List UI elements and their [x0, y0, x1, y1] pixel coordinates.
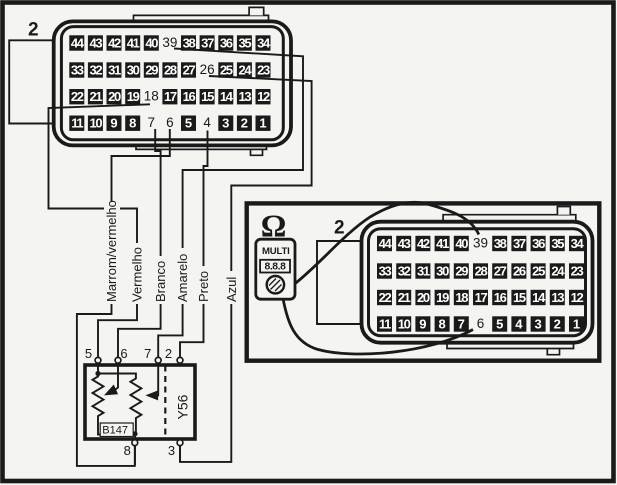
svg-text:43: 43 [89, 35, 102, 50]
svg-text:42: 42 [417, 236, 430, 251]
svg-text:2: 2 [554, 316, 561, 331]
svg-text:18: 18 [455, 290, 468, 305]
svg-text:19: 19 [127, 89, 140, 104]
svg-text:16: 16 [494, 290, 507, 305]
svg-text:2: 2 [165, 346, 172, 361]
svg-text:14: 14 [532, 290, 546, 305]
svg-text:2: 2 [28, 20, 39, 41]
svg-text:MULTI: MULTI [262, 246, 290, 257]
svg-text:21: 21 [398, 290, 411, 305]
svg-text:5: 5 [496, 316, 503, 331]
svg-text:21: 21 [89, 89, 102, 104]
svg-text:5: 5 [185, 116, 192, 131]
svg-text:24: 24 [551, 263, 565, 278]
svg-text:33: 33 [71, 62, 84, 77]
svg-text:29: 29 [455, 263, 468, 278]
svg-text:7: 7 [458, 316, 465, 331]
svg-text:42: 42 [108, 35, 121, 50]
svg-text:44: 44 [379, 236, 393, 251]
svg-text:10: 10 [89, 116, 102, 131]
svg-text:13: 13 [238, 89, 251, 104]
svg-text:8: 8 [129, 116, 136, 131]
svg-text:37: 37 [201, 35, 214, 50]
svg-text:23: 23 [571, 263, 584, 278]
svg-text:18: 18 [144, 89, 159, 104]
svg-text:5: 5 [85, 346, 92, 361]
svg-text:Vermelho: Vermelho [130, 247, 145, 302]
svg-text:40: 40 [145, 35, 158, 50]
svg-text:15: 15 [513, 290, 526, 305]
svg-text:27: 27 [183, 62, 196, 77]
svg-text:23: 23 [257, 62, 270, 77]
svg-text:35: 35 [238, 35, 251, 50]
svg-text:8: 8 [438, 316, 445, 331]
svg-text:4: 4 [203, 115, 211, 130]
svg-text:17: 17 [164, 89, 177, 104]
svg-text:20: 20 [417, 290, 430, 305]
svg-text:27: 27 [494, 263, 507, 278]
svg-text:28: 28 [164, 62, 177, 77]
svg-text:3: 3 [222, 116, 229, 131]
svg-text:12: 12 [571, 290, 584, 305]
svg-text:34: 34 [257, 35, 271, 50]
svg-text:41: 41 [127, 35, 140, 50]
svg-text:2: 2 [334, 218, 345, 239]
svg-text:8.8.8: 8.8.8 [264, 262, 286, 273]
svg-text:8: 8 [124, 443, 131, 458]
svg-text:31: 31 [417, 263, 430, 278]
svg-text:38: 38 [494, 236, 507, 251]
svg-text:9: 9 [110, 116, 117, 131]
svg-text:2: 2 [241, 116, 248, 131]
svg-text:15: 15 [201, 89, 214, 104]
svg-text:37: 37 [513, 236, 526, 251]
svg-text:29: 29 [145, 62, 158, 77]
svg-text:19: 19 [436, 290, 449, 305]
svg-text:6: 6 [477, 316, 485, 331]
svg-text:22: 22 [379, 290, 392, 305]
svg-text:25: 25 [220, 62, 233, 77]
svg-text:22: 22 [71, 89, 84, 104]
svg-text:11: 11 [71, 116, 83, 131]
svg-text:20: 20 [108, 89, 121, 104]
svg-text:14: 14 [220, 89, 234, 104]
svg-text:6: 6 [166, 115, 174, 130]
svg-text:3: 3 [168, 443, 175, 458]
svg-text:16: 16 [183, 89, 196, 104]
svg-text:7: 7 [144, 346, 151, 361]
svg-text:36: 36 [532, 236, 545, 251]
svg-text:1: 1 [259, 116, 266, 131]
svg-text:13: 13 [551, 290, 564, 305]
svg-text:12: 12 [257, 89, 270, 104]
svg-text:40: 40 [455, 236, 468, 251]
svg-text:30: 30 [436, 263, 449, 278]
svg-text:11: 11 [379, 316, 391, 331]
svg-text:Branco: Branco [153, 261, 168, 302]
svg-text:32: 32 [89, 62, 102, 77]
svg-text:B147: B147 [102, 425, 128, 437]
svg-text:36: 36 [220, 35, 233, 50]
svg-text:26: 26 [513, 263, 526, 278]
svg-text:31: 31 [108, 62, 121, 77]
svg-text:Y56: Y56 [175, 394, 191, 419]
svg-text:41: 41 [436, 236, 449, 251]
svg-text:Azul: Azul [224, 277, 239, 302]
svg-text:33: 33 [379, 263, 392, 278]
svg-text:25: 25 [532, 263, 545, 278]
svg-text:30: 30 [127, 62, 140, 77]
svg-text:17: 17 [475, 290, 488, 305]
svg-text:3: 3 [534, 316, 541, 331]
svg-text:39: 39 [473, 235, 488, 250]
svg-text:26: 26 [200, 62, 215, 77]
svg-text:9: 9 [419, 316, 426, 331]
svg-text:Marrom/vermelho: Marrom/vermelho [104, 200, 119, 302]
svg-text:28: 28 [475, 263, 488, 278]
svg-text:44: 44 [71, 35, 85, 50]
svg-text:35: 35 [551, 236, 564, 251]
svg-text:43: 43 [398, 236, 411, 251]
svg-text:24: 24 [238, 62, 252, 77]
svg-text:Amarelo: Amarelo [175, 254, 190, 302]
svg-text:7: 7 [148, 115, 156, 130]
svg-text:1: 1 [573, 316, 580, 331]
svg-text:4: 4 [515, 316, 523, 331]
svg-text:38: 38 [183, 35, 196, 50]
svg-text:10: 10 [398, 316, 411, 331]
svg-text:6: 6 [120, 346, 127, 361]
svg-text:34: 34 [571, 236, 585, 251]
svg-text:Preto: Preto [196, 271, 211, 302]
svg-text:32: 32 [398, 263, 411, 278]
